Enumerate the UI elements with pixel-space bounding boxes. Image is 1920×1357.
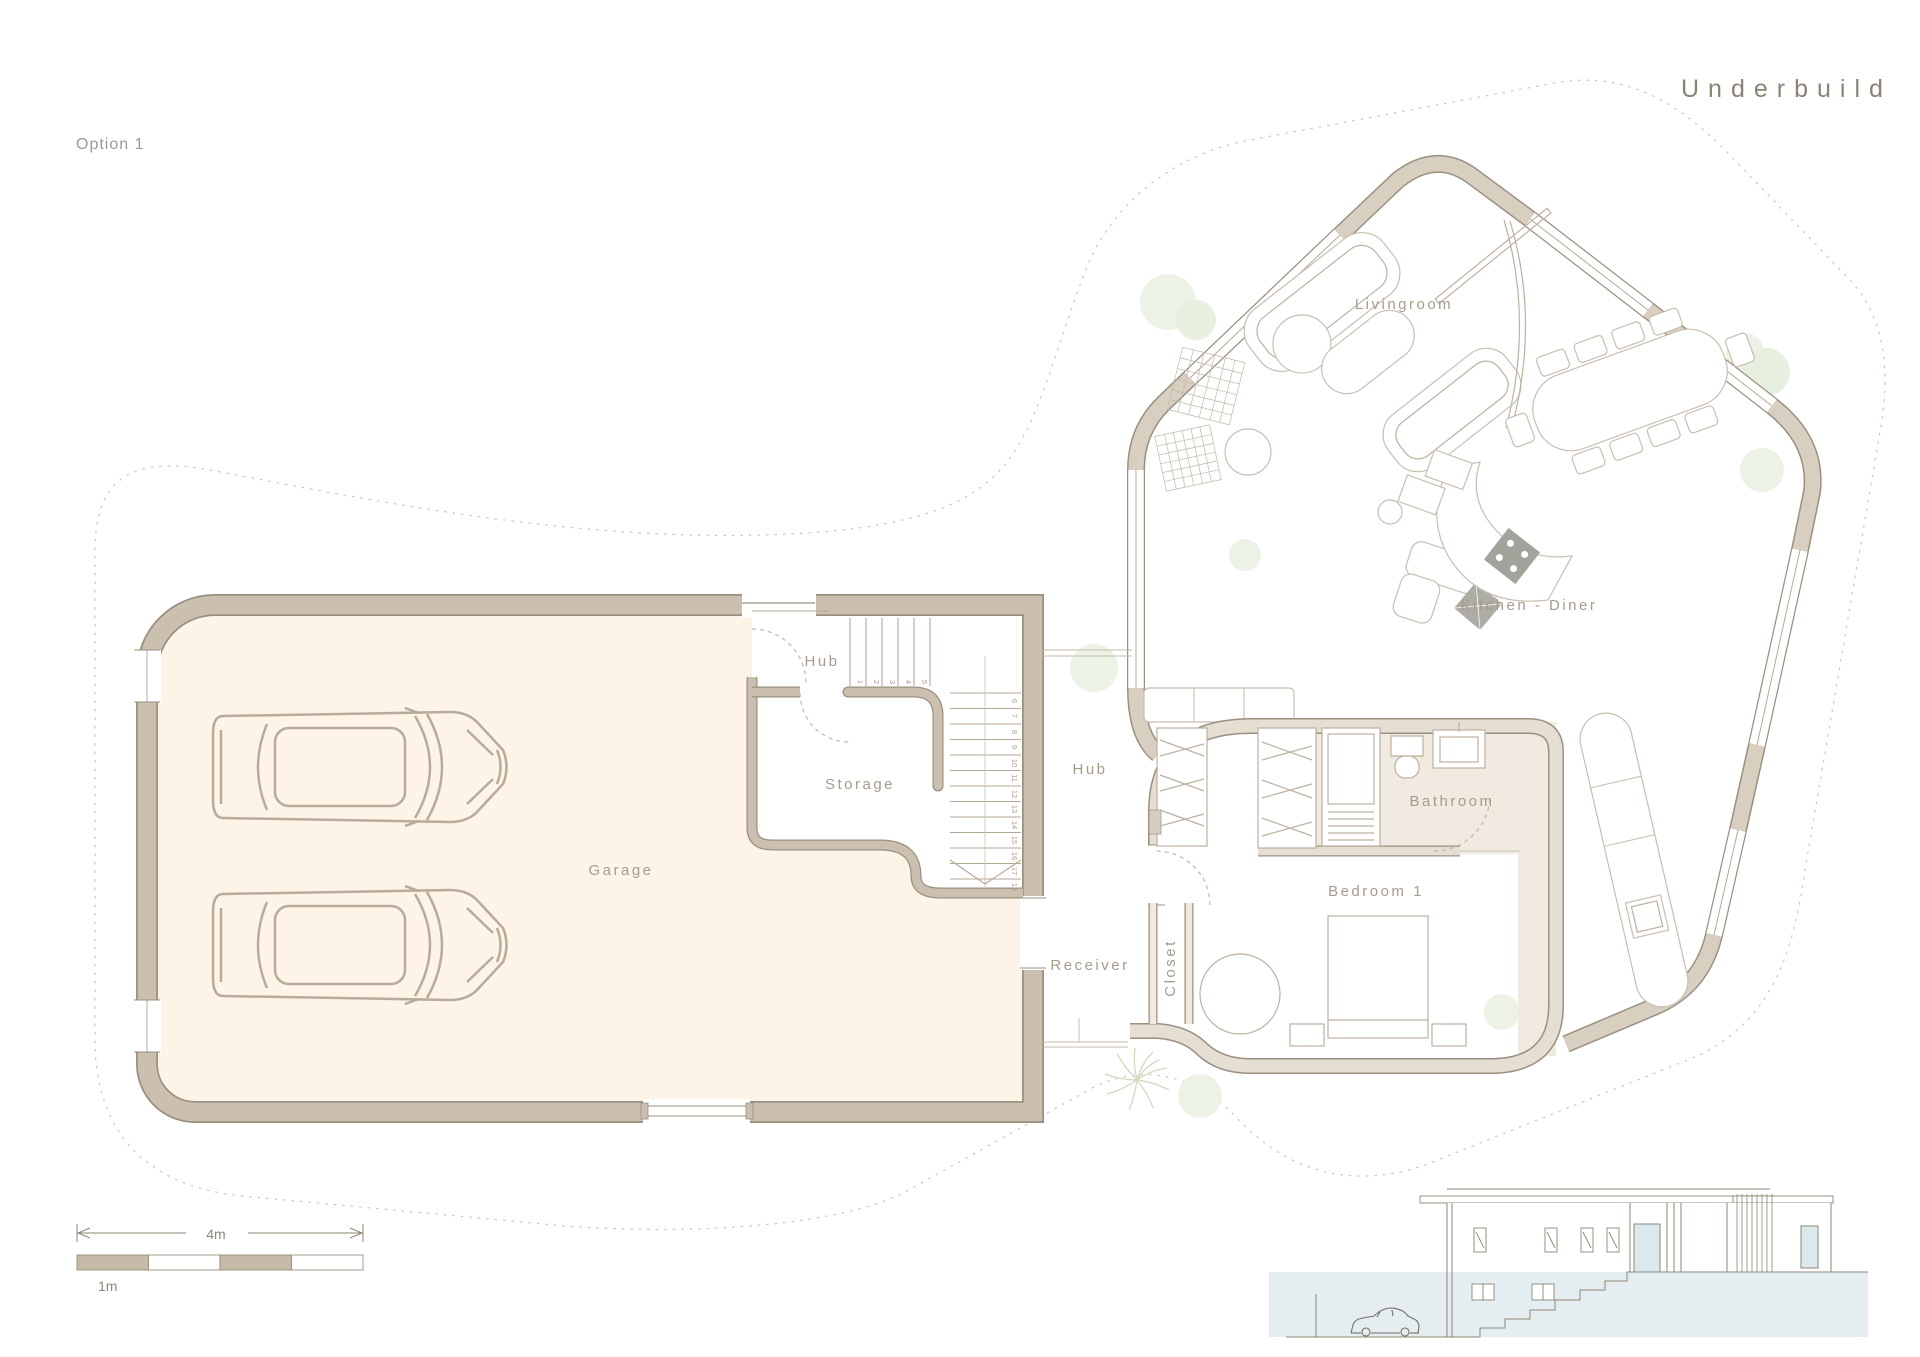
svg-text:8: 8 bbox=[1010, 730, 1019, 734]
palm-plant bbox=[1105, 1048, 1169, 1110]
wardrobe-2 bbox=[1258, 728, 1316, 848]
svg-text:5: 5 bbox=[920, 680, 929, 684]
bedroom-door-arc bbox=[1156, 851, 1210, 905]
garage-side-door bbox=[1020, 896, 1046, 970]
label-bathroom: Bathroom bbox=[1409, 793, 1494, 810]
garage-window-lower bbox=[133, 1000, 161, 1052]
dining-table bbox=[1489, 288, 1772, 492]
elevation-ground-block bbox=[1269, 1272, 1868, 1337]
entrance-threshold bbox=[1043, 1018, 1128, 1047]
svg-text:4: 4 bbox=[904, 680, 913, 684]
label-livingroom: Livingroom bbox=[1355, 296, 1453, 313]
rug-2 bbox=[1155, 425, 1221, 491]
label-garage: Garage bbox=[588, 862, 653, 879]
svg-text:13: 13 bbox=[1010, 805, 1019, 813]
bedroom-chair bbox=[1200, 954, 1280, 1034]
elevation-right-window bbox=[1801, 1226, 1818, 1268]
small-table bbox=[1378, 500, 1402, 524]
label-hub2: Hub bbox=[1072, 761, 1107, 778]
floor-plan-canvas: 1 2 3 4 5 6 7 8 9 10 11 12 13 14 15 16 1… bbox=[0, 0, 1920, 1357]
option-label: Option 1 bbox=[76, 136, 144, 153]
svg-text:7: 7 bbox=[1010, 714, 1019, 718]
svg-text:10: 10 bbox=[1010, 759, 1019, 767]
kitchen-counter-top bbox=[1144, 688, 1294, 722]
svg-text:14: 14 bbox=[1010, 821, 1019, 829]
garage-room: 1 2 3 4 5 6 7 8 9 10 11 12 13 14 15 16 1… bbox=[133, 592, 1046, 1125]
bed bbox=[1290, 916, 1466, 1046]
svg-text:1: 1 bbox=[856, 680, 865, 684]
side-table bbox=[1225, 429, 1271, 475]
svg-text:18: 18 bbox=[1010, 883, 1019, 891]
hub-sliding-door bbox=[742, 592, 828, 618]
scale-bar: 4m 1m bbox=[77, 1224, 363, 1294]
label-bedroom: Bedroom 1 bbox=[1328, 883, 1424, 900]
svg-text:3: 3 bbox=[888, 680, 897, 684]
garage-door bbox=[641, 1099, 753, 1125]
svg-text:12: 12 bbox=[1010, 790, 1019, 798]
wardrobe-1 bbox=[1149, 728, 1207, 846]
shower bbox=[1322, 728, 1380, 846]
label-hub: Hub bbox=[804, 653, 839, 670]
svg-text:17: 17 bbox=[1010, 867, 1019, 875]
page-title: Underbuild bbox=[1681, 75, 1892, 103]
building-elevation bbox=[1269, 1189, 1868, 1337]
svg-text:2: 2 bbox=[872, 680, 881, 684]
svg-text:9: 9 bbox=[1010, 745, 1019, 749]
svg-text:11: 11 bbox=[1010, 774, 1019, 782]
label-storage: Storage bbox=[825, 776, 895, 793]
elevation-door bbox=[1634, 1224, 1660, 1272]
svg-text:16: 16 bbox=[1010, 852, 1019, 860]
label-closet: Closet bbox=[1162, 939, 1179, 997]
label-receiver: Receiver bbox=[1050, 957, 1129, 974]
label-kitchen: Kitchen - Diner bbox=[1461, 597, 1598, 614]
svg-text:15: 15 bbox=[1010, 836, 1019, 844]
kitchen-counter-right bbox=[1575, 708, 1693, 1012]
scale-total-label: 4m bbox=[206, 1226, 225, 1242]
garage-window-upper bbox=[133, 650, 161, 702]
svg-text:6: 6 bbox=[1010, 699, 1019, 703]
scale-unit-label: 1m bbox=[98, 1278, 117, 1294]
